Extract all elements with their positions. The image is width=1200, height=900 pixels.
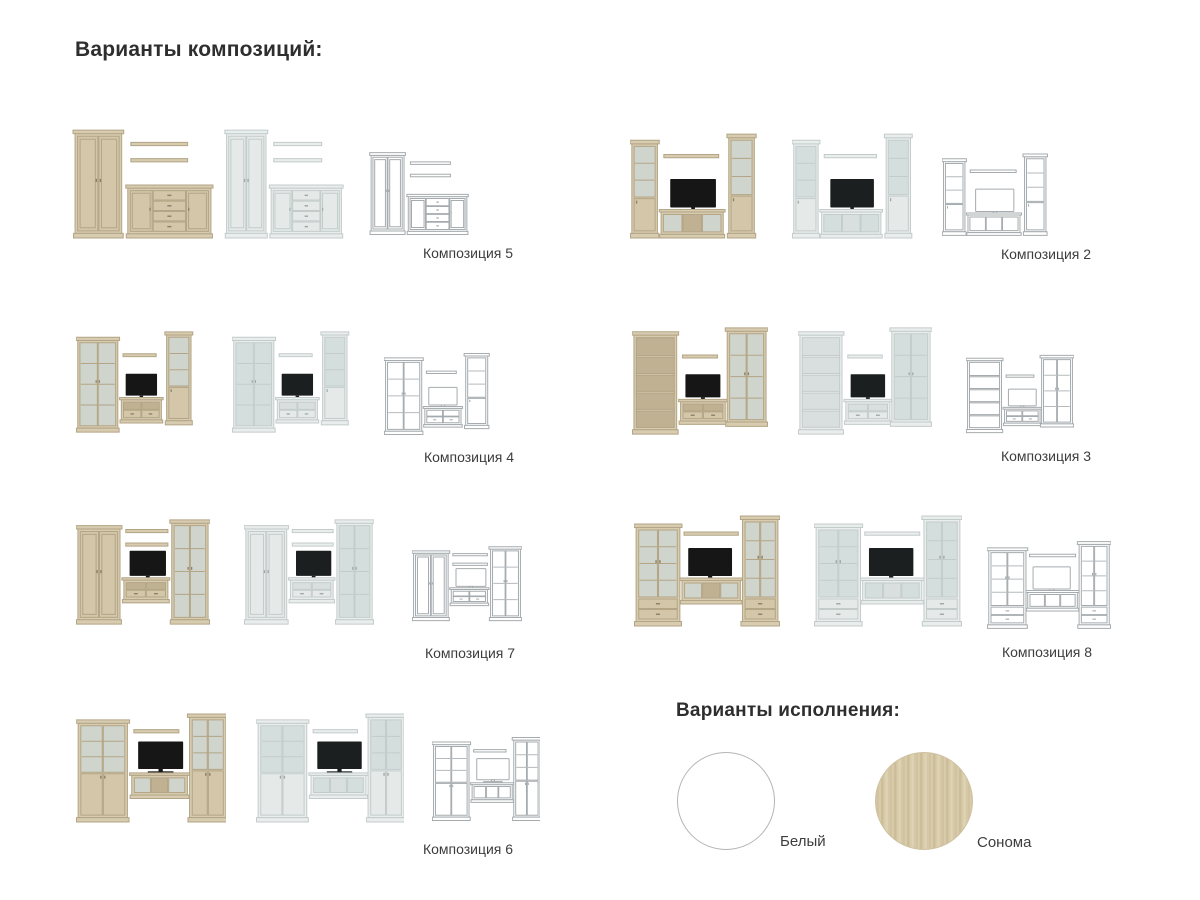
finish-swatch-sonoma xyxy=(875,752,973,850)
composition-block-5: Композиция 5 xyxy=(72,118,572,273)
composition-2-wireframe-render xyxy=(942,146,1049,237)
composition-6-sonoma-render xyxy=(76,712,226,824)
composition-8-white-svg xyxy=(814,514,962,628)
composition-6-wireframe-svg xyxy=(432,736,540,822)
composition-6-sonoma-svg xyxy=(76,712,226,824)
composition-4-white-svg xyxy=(232,330,354,434)
composition-5-white-render xyxy=(224,124,344,240)
composition-5-sonoma-svg xyxy=(72,124,214,240)
composition-2-white-render xyxy=(792,124,914,240)
composition-label: Композиция 6 xyxy=(383,841,553,857)
composition-2-sonoma-svg xyxy=(630,124,758,240)
catalog-page: Варианты композиций: Композиция 5 Композ… xyxy=(0,0,1200,900)
composition-4-sonoma-render xyxy=(76,330,198,434)
composition-3-sonoma-svg xyxy=(632,326,768,436)
composition-label: Композиция 3 xyxy=(961,448,1131,464)
finish-label-white: Белый xyxy=(780,833,826,850)
composition-5-white-svg xyxy=(224,124,344,240)
composition-7-wireframe-svg xyxy=(412,544,522,622)
composition-4-wireframe-svg xyxy=(384,352,494,436)
finish-swatch-white xyxy=(677,752,775,850)
composition-5-wireframe-render xyxy=(369,148,469,236)
composition-3-white-svg xyxy=(798,326,932,436)
composition-block-8: Композиция 8 xyxy=(630,510,1130,665)
composition-3-wireframe-svg xyxy=(966,354,1074,434)
composition-5-sonoma-render xyxy=(72,124,214,240)
composition-label: Композиция 2 xyxy=(961,246,1131,262)
composition-2-white-svg xyxy=(792,124,914,240)
composition-7-white-render xyxy=(244,516,374,626)
composition-6-white-svg xyxy=(256,712,404,824)
composition-label: Композиция 4 xyxy=(384,449,554,465)
composition-8-sonoma-render xyxy=(634,514,780,628)
composition-block-3: Композиция 3 xyxy=(628,322,1128,477)
composition-3-wireframe-render xyxy=(966,354,1074,434)
composition-7-sonoma-render xyxy=(76,516,210,626)
composition-block-6: Композиция 6 xyxy=(74,708,574,863)
composition-7-sonoma-svg xyxy=(76,516,210,626)
composition-8-wireframe-render xyxy=(987,540,1111,630)
composition-label: Композиция 7 xyxy=(385,645,555,661)
composition-5-wireframe-svg xyxy=(369,148,469,236)
composition-6-wireframe-render xyxy=(432,736,540,822)
composition-3-white-render xyxy=(798,326,932,436)
finish-label-sonoma: Сонома xyxy=(977,834,1031,851)
composition-3-sonoma-render xyxy=(632,326,768,436)
compositions-heading: Варианты композиций: xyxy=(75,38,323,62)
composition-7-wireframe-render xyxy=(412,544,522,622)
composition-8-wireframe-svg xyxy=(987,540,1111,630)
composition-4-sonoma-svg xyxy=(76,330,198,434)
finishes-heading: Варианты исполнения: xyxy=(676,700,900,722)
composition-4-wireframe-render xyxy=(384,352,494,436)
composition-label: Композиция 8 xyxy=(962,644,1132,660)
composition-label: Композиция 5 xyxy=(383,245,553,261)
composition-2-wireframe-svg xyxy=(942,146,1049,237)
composition-block-2: Композиция 2 xyxy=(628,118,1128,273)
composition-4-white-render xyxy=(232,330,354,434)
composition-6-white-render xyxy=(256,712,404,824)
composition-8-white-render xyxy=(814,514,962,628)
composition-7-white-svg xyxy=(244,516,374,626)
composition-8-sonoma-svg xyxy=(634,514,780,628)
composition-block-4: Композиция 4 xyxy=(74,326,574,481)
composition-block-7: Композиция 7 xyxy=(74,512,574,667)
composition-2-sonoma-render xyxy=(630,124,758,240)
